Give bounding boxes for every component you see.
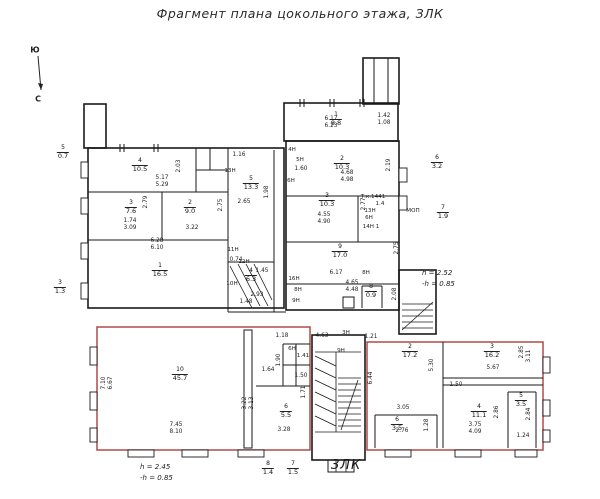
dimension-label: 6.28 [151, 238, 164, 244]
room-label: 210.3 [334, 156, 350, 171]
dimension-label: 1.18 [276, 333, 289, 339]
dimension-label: 3.28 [278, 427, 291, 433]
note-label: 1.41 [297, 353, 309, 359]
dimension-label: 7.10 [101, 377, 107, 390]
height-note-left-line2: -h = 0.85 [140, 473, 173, 484]
dimension-label: 6.67 [108, 377, 114, 390]
note-label: 10Н [226, 281, 237, 287]
dimension-label: 1.50 [295, 373, 308, 379]
room-label: 53.5 [515, 393, 527, 408]
note-label: 13Н [364, 208, 375, 214]
note-label: 4Н [288, 147, 296, 153]
note-label: 5Н [296, 157, 304, 163]
dimension-label: 2.75 [218, 199, 224, 212]
dimension-label: 2.84 [526, 408, 532, 421]
height-note-right-line1: h = 2.52 [422, 268, 455, 279]
dimension-label: 1.28 [424, 419, 430, 432]
note-label: 6Н [365, 215, 373, 221]
note-label: 16Н [288, 276, 299, 282]
dimension-label: 1.64 [262, 367, 275, 373]
room-label: 217.2 [402, 344, 418, 359]
note-label: Т.к.1441 [361, 194, 386, 200]
dimension-label: 5.17 [156, 175, 169, 181]
dimension-label: 3.13 [249, 397, 255, 410]
floorplan-page: Фрагмент плана цокольного этажа, ЗЛК [0, 0, 600, 499]
dimension-label: 4.90 [318, 219, 331, 225]
dimension-label: 4.98 [341, 177, 354, 183]
dimension-label: 2.85 [519, 346, 525, 359]
dimension-label: 6.23 [325, 123, 338, 129]
room-label: 31.3 [54, 280, 66, 295]
dimension-label: 1.45 [256, 268, 269, 274]
dimension-label: 3.75 [469, 422, 482, 428]
dimension-label: 6.44 [368, 372, 374, 385]
dimension-label: 1.71 [301, 386, 307, 399]
dimension-label: 3.22 [186, 225, 199, 231]
room-label: 80.9 [365, 284, 377, 299]
note-label: 6Н [288, 346, 296, 352]
dimension-label: 3.09 [124, 225, 137, 231]
dimension-label: 2.79 [143, 196, 149, 209]
dimension-label: 1.50 [450, 382, 463, 388]
dimension-label: 1.60 [295, 166, 308, 172]
room-label: 50.7 [57, 145, 69, 160]
dimension-label: 1.21 [365, 334, 378, 340]
room-label: 410.5 [132, 158, 148, 173]
dimension-label: 2.93 [251, 292, 264, 298]
note-label: 1.4 [376, 201, 385, 207]
dimension-label: 7.45 [170, 422, 183, 428]
dimension-label: 3.05 [397, 405, 410, 411]
dimension-label: 2.75 [394, 242, 400, 255]
dimension-label: 5.29 [156, 182, 169, 188]
room-label: 316.2 [484, 344, 500, 359]
dimension-label: 4.48 [346, 287, 359, 293]
room-label: 65.5 [280, 404, 292, 419]
dimension-label: 2.19 [386, 159, 392, 172]
height-note-left-line1: h = 2.45 [140, 462, 173, 473]
dimension-label: 6.17 [325, 116, 338, 122]
floor-plan-drawing [0, 0, 600, 499]
dimension-label: 1.74 [124, 218, 137, 224]
dimension-label: 1.42 [378, 113, 391, 119]
room-label: 411.1 [471, 404, 487, 419]
dimension-label: 2.86 [494, 406, 500, 419]
note-label: 14Н 1 [363, 224, 380, 230]
compass-label: Ю [30, 46, 39, 55]
room-label: 917.0 [332, 244, 348, 259]
note-label: 9Н [337, 348, 345, 354]
dimension-label: 5.30 [429, 359, 435, 372]
room-label: 310.3 [319, 193, 335, 208]
note-label: 9Н [292, 298, 300, 304]
dimension-label: 1.24 [517, 433, 530, 439]
dimension-label: 1.98 [264, 186, 270, 199]
height-note-right-line2: -h = 0.85 [422, 279, 455, 290]
note-label: 3Н [342, 330, 350, 336]
dimension-label: 3.22 [242, 397, 248, 410]
dimension-label: 4.63 [316, 333, 329, 339]
dimension-label: 4.65 [346, 280, 359, 286]
dimension-label: 6.17 [330, 270, 343, 276]
zlk-label: ЗЛК [331, 458, 361, 473]
dimension-label: 2.08 [392, 288, 398, 301]
dimension-label: 2.65 [238, 199, 251, 205]
dimension-label: 1.48 [240, 299, 253, 305]
note-label: 12Н [238, 259, 249, 265]
height-note-right: h = 2.52 -h = 0.85 [422, 268, 455, 289]
height-note-left: h = 2.45 -h = 0.85 [140, 462, 173, 483]
room-label: 513.3 [243, 176, 259, 191]
room-label: 37.6 [125, 200, 137, 215]
main-staircase [315, 352, 361, 472]
dimension-label: 2.03 [176, 160, 182, 173]
dimension-label: 4.55 [318, 212, 331, 218]
note-label: 8Н [362, 270, 370, 276]
dimension-label: 5.67 [487, 365, 500, 371]
note-label: 13Н [224, 168, 235, 174]
dimension-label: 6.10 [151, 245, 164, 251]
dimension-label: 1.16 [233, 152, 246, 158]
dimension-label: 3.11 [526, 350, 532, 363]
dimension-label: 1.90 [276, 354, 282, 367]
note-label: 11Н [227, 247, 238, 253]
compass-label: С [35, 95, 41, 104]
room-label: 71.9 [437, 205, 449, 220]
note-label: 6Н [287, 178, 295, 184]
room-label: 116.5 [152, 263, 168, 278]
dimension-label: 8.10 [170, 429, 183, 435]
dimension-label: 4.68 [341, 170, 354, 176]
dimension-label: 2.76 [396, 428, 409, 434]
room-label: 63.2 [431, 155, 443, 170]
north-arrow [38, 56, 43, 90]
note-label: 8Н [294, 287, 302, 293]
room-label: 29.0 [184, 200, 196, 215]
room-label: 1045.7 [172, 367, 188, 382]
room-label: 81.4 [262, 461, 274, 476]
dimension-label: 1.08 [378, 120, 391, 126]
note-label: МОП [406, 208, 419, 214]
dimension-label: 4.09 [469, 429, 482, 435]
room-label: 71.5 [287, 461, 299, 476]
